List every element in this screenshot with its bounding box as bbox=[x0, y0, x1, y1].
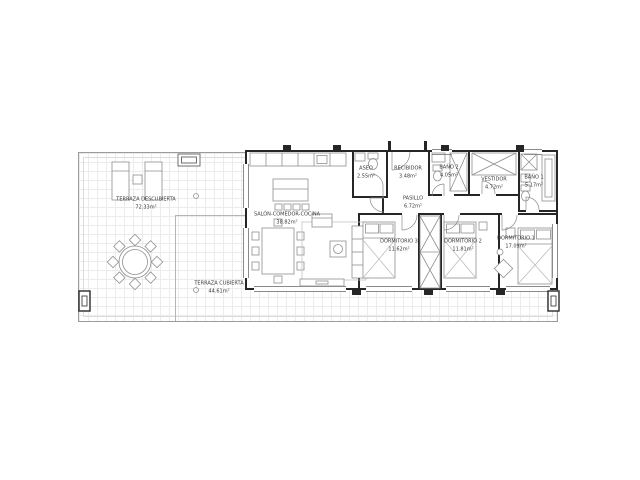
room-label-vestidor: VESTIDOR 4.72m² bbox=[481, 177, 507, 192]
pillar-top-2 bbox=[333, 145, 341, 151]
wall-vestidor-right bbox=[518, 152, 520, 212]
room-label-terraza-cubierta: TERRAZA CUBIERTA 44.61m² bbox=[194, 281, 243, 296]
room-name: SALÓN-COMEDOR-COCINA bbox=[254, 212, 320, 220]
room-area: 4.05m² bbox=[439, 172, 458, 180]
room-area: 17.09m² bbox=[497, 243, 535, 251]
bano1-top-window bbox=[524, 149, 542, 155]
pillar-bottom-2 bbox=[424, 289, 433, 295]
room-label-bano-2: BAÑO 2 4.05m² bbox=[439, 165, 458, 180]
wall-closet-left bbox=[418, 213, 420, 290]
wall-bedrooms-top-c bbox=[460, 213, 502, 215]
wall-salon-pasillo bbox=[382, 196, 384, 213]
covered-terrace-boundary-v bbox=[175, 215, 176, 321]
wall-bedrooms-top-a bbox=[360, 213, 402, 215]
pillar-top-3 bbox=[441, 145, 449, 151]
pillar-top-4 bbox=[516, 145, 524, 151]
wall-dorm2-dorm1 bbox=[498, 213, 500, 290]
room-area: 2.55m² bbox=[357, 173, 375, 181]
entry-stub-left bbox=[388, 141, 391, 151]
room-label-terraza-descubierta: TERRAZA DESCUBIERTA 72.33m² bbox=[116, 197, 175, 212]
room-area: 11.81m² bbox=[444, 246, 482, 254]
dorm2-window bbox=[446, 286, 490, 292]
room-label-dormitorio-1: DORMITORIO 1 17.09m² bbox=[497, 236, 535, 251]
room-area: 4.72m² bbox=[481, 184, 507, 192]
room-label-recibidor: RECIBIDOR 3.48m² bbox=[394, 166, 422, 181]
salon-bottom-window bbox=[254, 286, 346, 292]
room-area: 3.48m² bbox=[394, 173, 422, 181]
room-name: BAÑO 1 bbox=[524, 175, 543, 183]
room-area: 5.17m² bbox=[524, 182, 543, 190]
room-label-dormitorio-2: DORMITORIO 2 11.81m² bbox=[444, 239, 482, 254]
room-name: DORMITORIO 3 bbox=[380, 239, 418, 247]
entry-stub-right bbox=[424, 141, 427, 151]
pillar-bottom-3 bbox=[496, 289, 505, 295]
room-label-salon: SALÓN-COMEDOR-COCINA 38.82m² bbox=[254, 212, 320, 227]
wall-aseo-right bbox=[386, 152, 388, 198]
wall-bano1-bottom-a bbox=[518, 210, 526, 212]
dorm1-window bbox=[506, 286, 550, 292]
dorm3-window bbox=[366, 286, 412, 292]
wall-aseo-left bbox=[352, 152, 354, 198]
wall-vestidor-bottom-a bbox=[470, 194, 480, 196]
salon-left-window-a bbox=[243, 164, 249, 208]
room-name: DORMITORIO 1 bbox=[497, 236, 535, 244]
room-label-dormitorio-3: DORMITORIO 3 11.62m² bbox=[380, 239, 418, 254]
wall-recibidor-right bbox=[428, 152, 430, 196]
room-area: 11.62m² bbox=[380, 246, 418, 254]
room-name: RECIBIDOR bbox=[394, 166, 422, 174]
dorm1-right-window bbox=[552, 224, 558, 278]
room-name: PASILLO bbox=[403, 196, 423, 204]
room-label-aseo: ASEO 2.55m² bbox=[357, 166, 375, 181]
room-name: DORMITORIO 2 bbox=[444, 239, 482, 247]
room-area: 44.61m² bbox=[194, 288, 243, 296]
pillar-bottom-1 bbox=[352, 289, 361, 295]
room-area: 6.72m² bbox=[403, 203, 423, 211]
room-label-bano-1: BAÑO 1 5.17m² bbox=[524, 175, 543, 190]
wall-closet-right bbox=[440, 213, 442, 290]
room-label-pasillo: PASILLO 6.72m² bbox=[403, 196, 423, 211]
room-name: TERRAZA DESCUBIERTA bbox=[116, 197, 175, 205]
room-name: TERRAZA CUBIERTA bbox=[194, 281, 243, 289]
wall-salon-dorm3 bbox=[358, 213, 360, 290]
pillar-top-1 bbox=[283, 145, 291, 151]
wall-vestidor-bottom-b bbox=[496, 194, 520, 196]
wall-bedrooms-top-d bbox=[518, 213, 558, 215]
room-area: 38.82m² bbox=[254, 219, 320, 227]
wall-bano2-right bbox=[468, 152, 470, 196]
room-name: VESTIDOR bbox=[481, 177, 507, 185]
wall-bano2-bottom-a bbox=[430, 194, 442, 196]
floor-plan-canvas: TERRAZA DESCUBIERTA 72.33m² TERRAZA CUBI… bbox=[0, 0, 640, 480]
wall-bano1-bottom-b bbox=[539, 210, 556, 212]
salon-left-window-b bbox=[243, 228, 249, 278]
covered-terrace-boundary-h bbox=[175, 215, 245, 216]
room-name: BAÑO 2 bbox=[439, 165, 458, 173]
room-area: 72.33m² bbox=[116, 204, 175, 212]
room-name: ASEO bbox=[357, 166, 375, 174]
